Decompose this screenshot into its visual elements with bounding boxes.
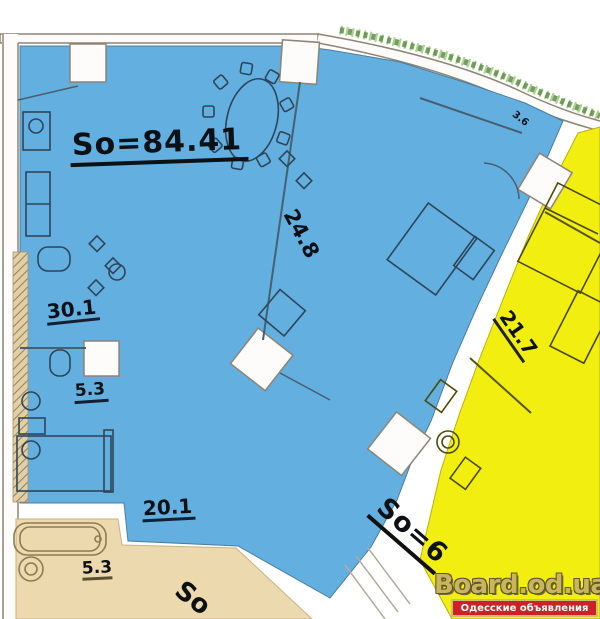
column (280, 40, 320, 84)
watermark-banner: Одесские объявления (451, 599, 598, 617)
watermark-site-text: Board.od.ua (434, 570, 600, 600)
column (84, 341, 119, 376)
blue-total-area-label: So=84.41 (69, 125, 248, 167)
floor-plan-image: So=84.41 30.1 24.8 5.3 20.1 3.6 21.7 So=… (0, 0, 600, 619)
room-area-label-5-3-tan: 5.3 (81, 559, 112, 581)
room-area-label-20-1: 20.1 (141, 496, 196, 523)
column (70, 44, 106, 82)
watermark-tagline: Одесские объявления (461, 603, 589, 614)
room-area-label-5-3-blue: 5.3 (73, 381, 109, 404)
left-wall-hatch (13, 252, 28, 502)
